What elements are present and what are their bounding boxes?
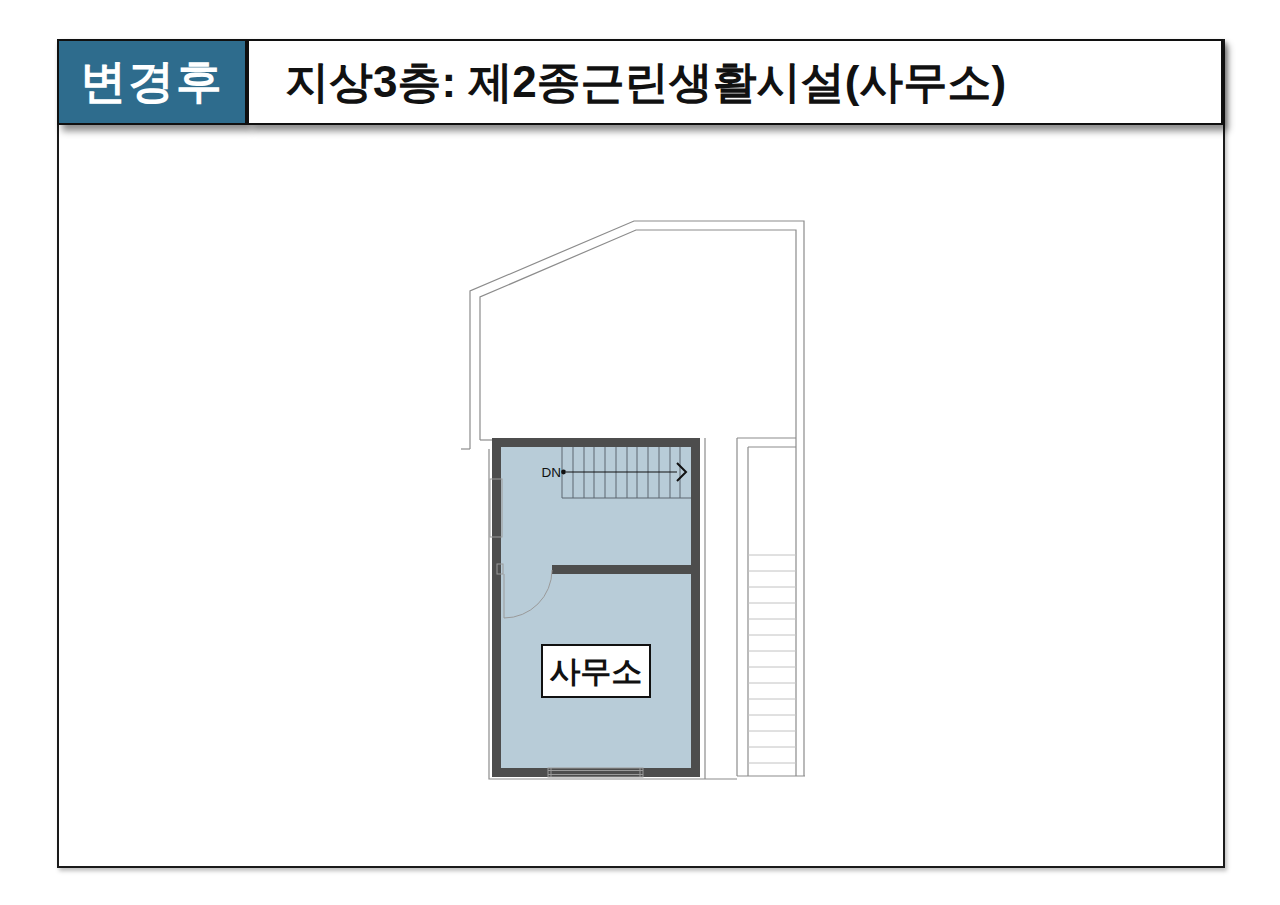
partition-wall	[552, 565, 700, 574]
change-status-badge: 변경후	[57, 39, 247, 125]
badge-label: 변경후	[80, 51, 224, 113]
exterior-stairs	[748, 555, 796, 763]
slide-title-box: 지상3층: 제2종근린생활시설(사무소)	[247, 39, 1223, 125]
room-floor	[501, 447, 691, 768]
room-label-text: 사무소	[550, 654, 643, 689]
office-room	[492, 438, 700, 777]
room-label: 사무소	[542, 645, 650, 697]
arrow-start-dot	[561, 470, 566, 475]
slide-title: 지상3층: 제2종근린생활시설(사무소)	[249, 53, 1006, 112]
dn-label: DN	[542, 465, 562, 480]
floor-plan-drawing: DN 사무소	[0, 0, 1280, 905]
slide-header: 변경후 지상3층: 제2종근린생활시설(사무소)	[57, 39, 1223, 125]
